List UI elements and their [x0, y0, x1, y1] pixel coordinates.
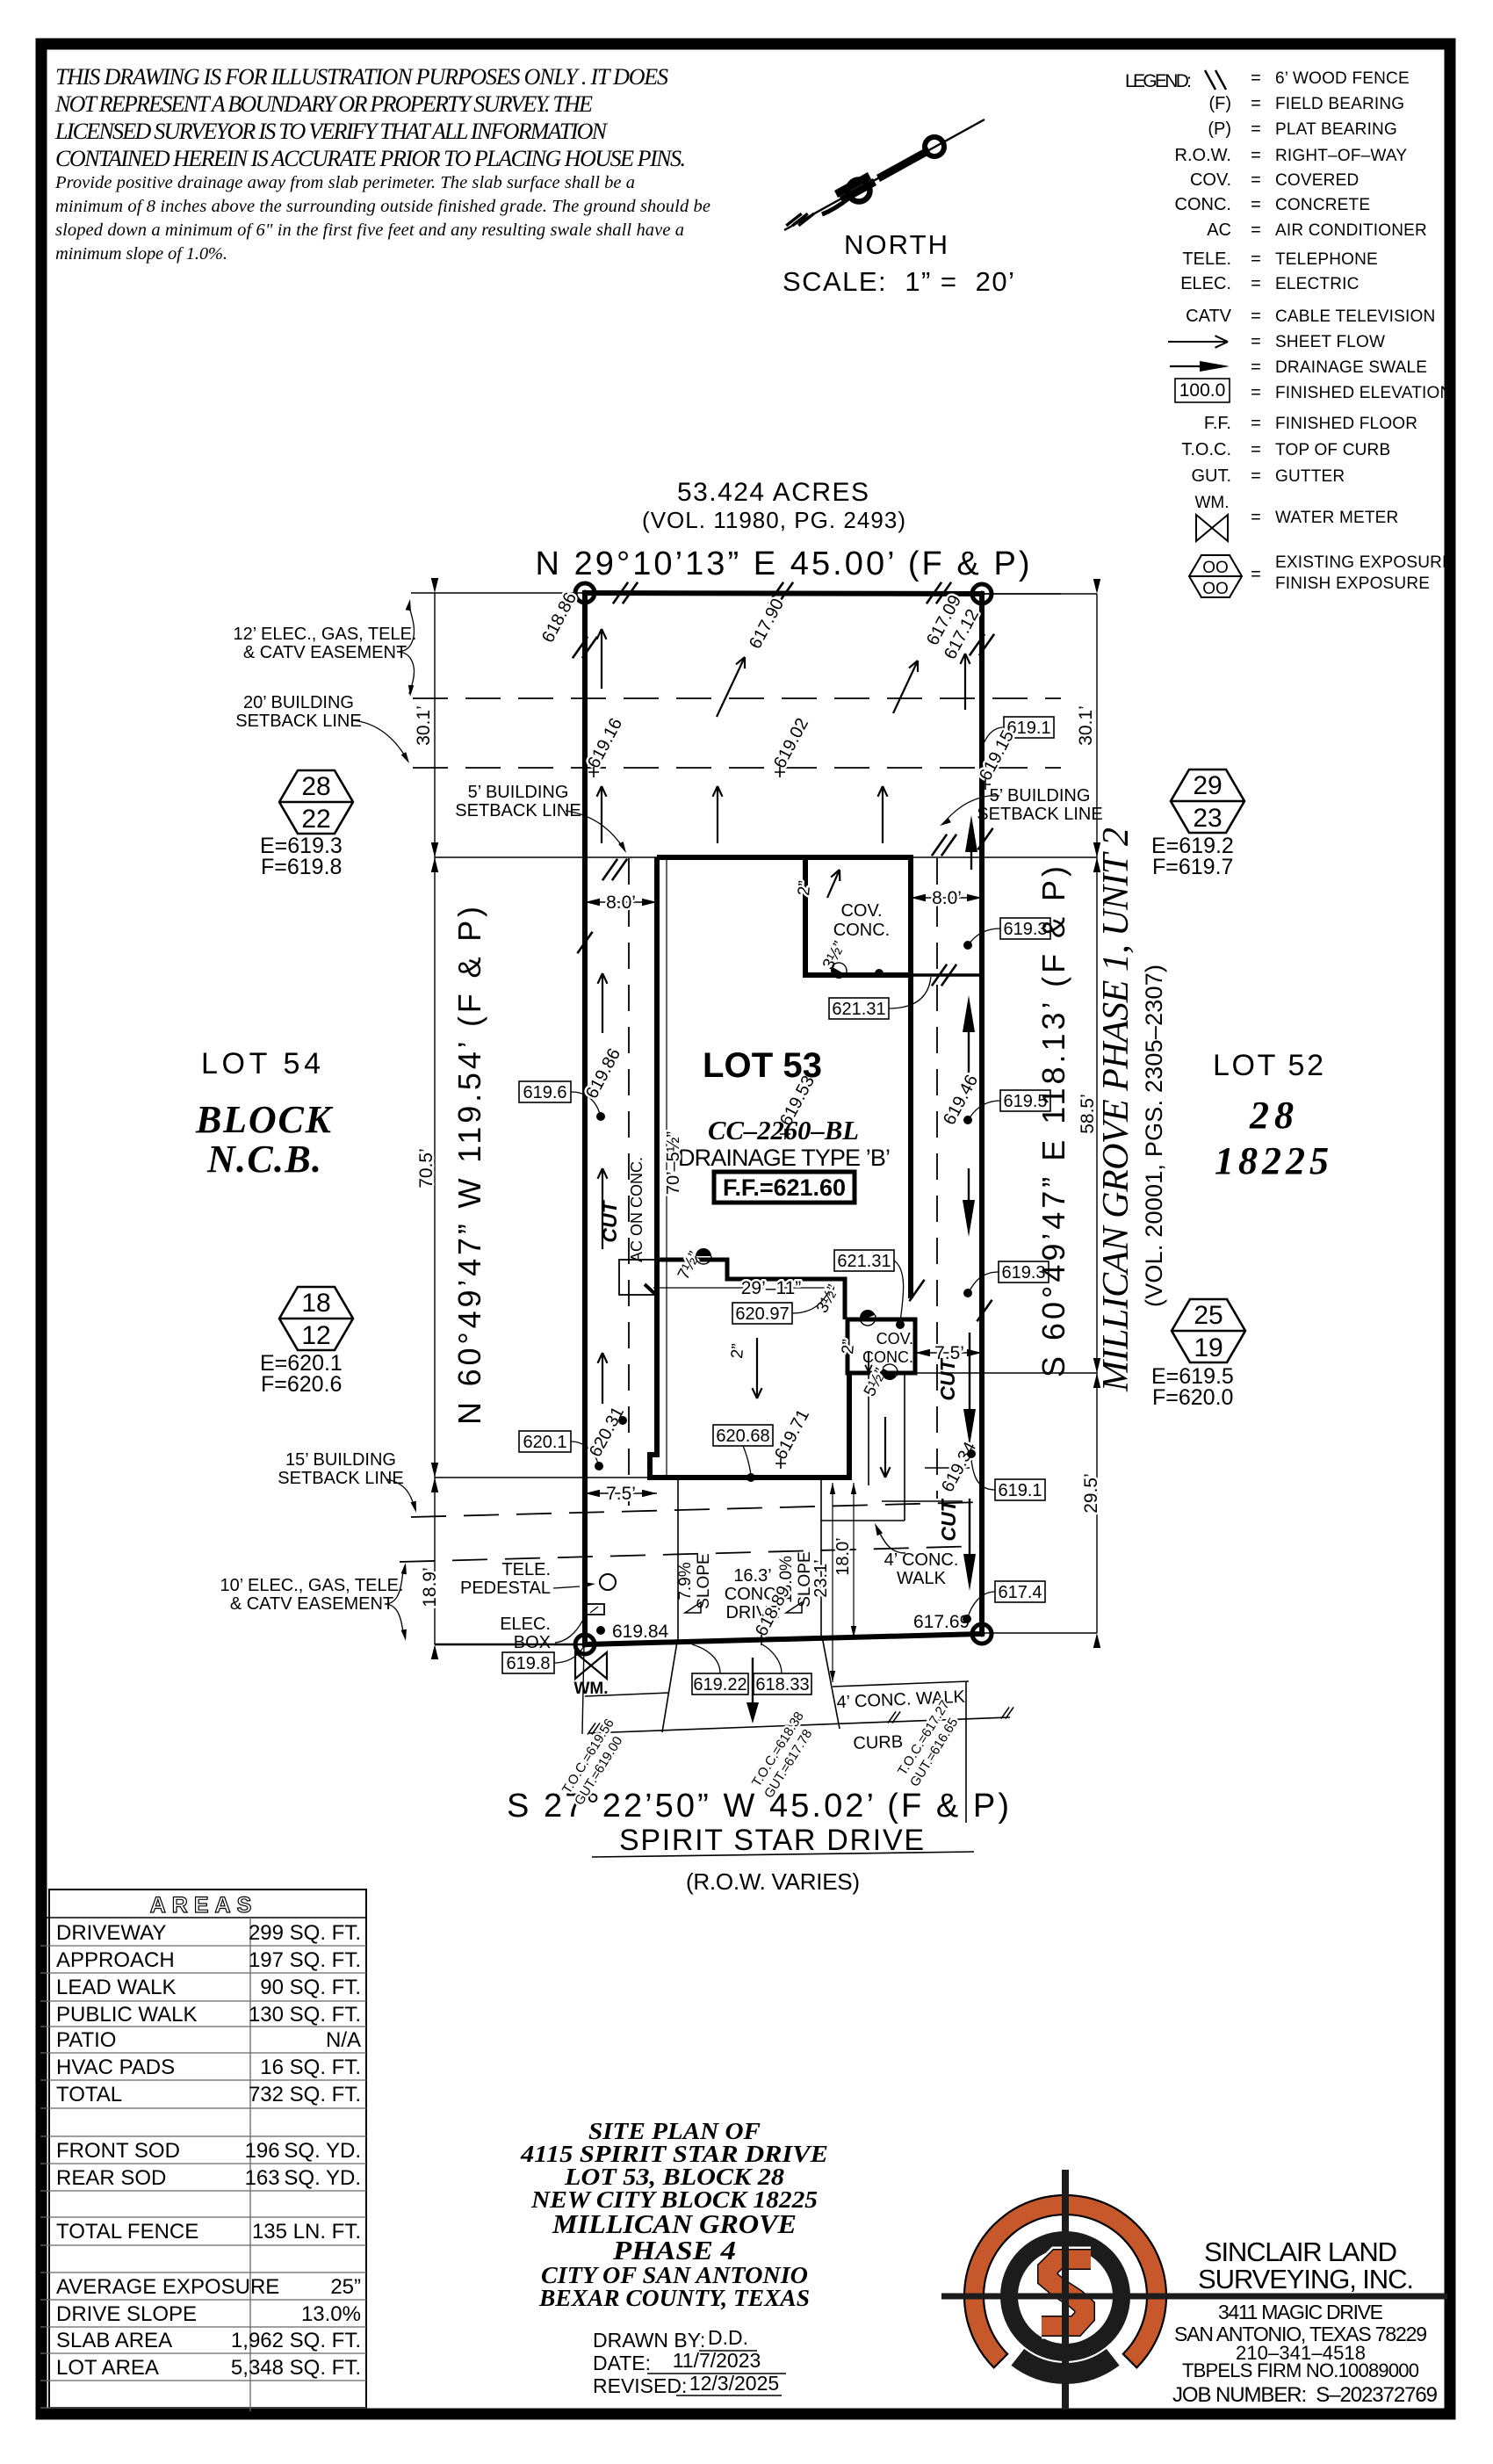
svg-text:617.4: 617.4 — [998, 1583, 1042, 1602]
svg-text:NOT REPRESENT A BOUNDARY OR PR: NOT REPRESENT A BOUNDARY OR PROPERTY SUR… — [54, 91, 593, 117]
svg-text:FINISHED FLOOR: FINISHED FLOOR — [1275, 415, 1417, 433]
svg-text:AC ON CONC.: AC ON CONC. — [628, 1157, 646, 1262]
svg-text:EXISTING EXPOSURE: EXISTING EXPOSURE — [1275, 553, 1453, 572]
svg-text:N/A: N/A — [326, 2028, 361, 2052]
svg-text:FRONT SOD: FRONT SOD — [56, 2139, 180, 2163]
svg-text:12’ ELEC., GAS, TELE.: 12’ ELEC., GAS, TELE. — [234, 625, 417, 644]
svg-text:SETBACK LINE: SETBACK LINE — [235, 712, 361, 731]
svg-text:WM.: WM. — [1194, 494, 1229, 512]
svg-text:197 SQ. FT.: 197 SQ. FT. — [249, 1948, 361, 1972]
svg-text:25”: 25” — [330, 2275, 361, 2299]
svg-text:=: = — [1251, 69, 1261, 88]
svg-text:TBPELS FIRM NO.10089000: TBPELS FIRM NO.10089000 — [1182, 2359, 1419, 2381]
svg-text:SCALE: 1” = 20’: SCALE: 1” = 20’ — [783, 266, 1014, 297]
svg-text:BOX: BOX — [514, 1633, 551, 1652]
svg-text:15’ BUILDING: 15’ BUILDING — [285, 1450, 396, 1470]
svg-text:TOP OF CURB: TOP OF CURB — [1275, 441, 1390, 459]
svg-text:TELE.: TELE. — [1182, 249, 1231, 269]
svg-text:COVERED: COVERED — [1275, 171, 1359, 190]
svg-text:100.0: 100.0 — [1179, 380, 1226, 401]
svg-text:CUT: CUT — [598, 1199, 621, 1242]
svg-text:ELEC.: ELEC. — [500, 1615, 551, 1634]
svg-text:minimum of 8 inches above the: minimum of 8 inches above the surroundin… — [55, 197, 710, 216]
svg-text:732 SQ. FT.: 732 SQ. FT. — [249, 2083, 361, 2106]
svg-text:PLAT BEARING: PLAT BEARING — [1275, 120, 1397, 139]
svg-text:CONC.: CONC. — [1175, 195, 1231, 214]
svg-text:FIELD BEARING: FIELD BEARING — [1275, 95, 1404, 113]
svg-text:CATV: CATV — [1186, 307, 1232, 326]
svg-text:JOB NUMBER: S–202372769: JOB NUMBER: S–202372769 — [1172, 2383, 1438, 2407]
svg-text:6’ WOOD FENCE: 6’ WOOD FENCE — [1275, 69, 1410, 88]
svg-text:53.424 ACRES: 53.424 ACRES — [677, 478, 870, 507]
svg-text:N.C.B.: N.C.B. — [206, 1138, 321, 1181]
svg-text:620.68: 620.68 — [716, 1427, 769, 1446]
svg-text:T.O.C.: T.O.C. — [1181, 440, 1231, 459]
svg-text:=: = — [1251, 119, 1261, 139]
svg-text:620.97: 620.97 — [735, 1304, 789, 1324]
svg-text:29’–11”: 29’–11” — [741, 1278, 802, 1298]
svg-text:minimum slope of 1.0%.: minimum slope of 1.0%. — [55, 244, 227, 264]
svg-text:COV.: COV. — [876, 1330, 913, 1348]
svg-text:=: = — [1251, 414, 1261, 433]
svg-text:SLOPE: SLOPE — [695, 1553, 713, 1608]
svg-text:=: = — [1251, 508, 1261, 527]
svg-text:SETBACK LINE: SETBACK LINE — [455, 801, 581, 820]
svg-text:CUT: CUT — [937, 1498, 960, 1541]
svg-text:617.69: 617.69 — [913, 1612, 970, 1632]
svg-text:F.F.=621.60: F.F.=621.60 — [723, 1174, 846, 1201]
svg-text:5,348 SQ. FT.: 5,348 SQ. FT. — [231, 2356, 361, 2380]
svg-text:PHASE 4: PHASE 4 — [612, 2235, 736, 2265]
svg-text:130 SQ. FT.: 130 SQ. FT. — [249, 2003, 361, 2027]
svg-text:299 SQ. FT.: 299 SQ. FT. — [249, 1921, 361, 1945]
svg-text:20’ BUILDING: 20’ BUILDING — [243, 693, 354, 712]
svg-text:5’ BUILDING: 5’ BUILDING — [468, 783, 569, 802]
svg-text:12: 12 — [301, 1321, 330, 1350]
svg-text:OO: OO — [1202, 559, 1229, 577]
svg-text:APPROACH: APPROACH — [56, 1948, 175, 1972]
svg-text:SHEET FLOW: SHEET FLOW — [1275, 333, 1385, 351]
svg-text:2”: 2” — [795, 880, 814, 897]
svg-text:23.1’: 23.1’ — [811, 1559, 831, 1597]
svg-text:(P): (P) — [1208, 119, 1231, 139]
svg-text:TOTAL: TOTAL — [56, 2083, 122, 2106]
svg-text:(VOL. 20001, PGS. 2305–2307): (VOL. 20001, PGS. 2305–2307) — [1141, 965, 1167, 1307]
svg-text:DRAINAGE TYPE ’B’: DRAINAGE TYPE ’B’ — [678, 1145, 891, 1171]
svg-text:Provide positive drainage away: Provide positive drainage away from slab… — [54, 173, 635, 192]
svg-text:SINCLAIR LAND: SINCLAIR LAND — [1204, 2236, 1399, 2267]
svg-text:618.33: 618.33 — [755, 1675, 809, 1694]
svg-text:F=620.6: F=620.6 — [261, 1372, 342, 1397]
svg-text:=: = — [1251, 383, 1261, 402]
svg-text:10’ ELEC., GAS, TELE.: 10’ ELEC., GAS, TELE. — [220, 1576, 404, 1595]
svg-text:29: 29 — [1193, 771, 1222, 800]
svg-text:30.1’: 30.1’ — [414, 705, 434, 746]
svg-text:18225: 18225 — [1215, 1139, 1329, 1182]
svg-text:16.3’: 16.3’ — [733, 1566, 771, 1586]
svg-text:REAR SOD: REAR SOD — [56, 2166, 166, 2190]
svg-text:=: = — [1251, 220, 1261, 240]
svg-text:HVAC PADS: HVAC PADS — [56, 2056, 175, 2079]
svg-text:MILLICAN GROVE PHASE 1, UNIT 2: MILLICAN GROVE PHASE 1, UNIT 2 — [1096, 827, 1136, 1392]
svg-text:AC: AC — [1207, 220, 1231, 240]
svg-text:=: = — [1251, 358, 1261, 377]
svg-text:30.1’: 30.1’ — [1076, 705, 1096, 746]
svg-text:LOT 54: LOT 54 — [201, 1047, 326, 1080]
svg-text:=: = — [1251, 195, 1261, 214]
svg-text:2”: 2” — [839, 1339, 858, 1355]
svg-text:CONC.: CONC. — [833, 921, 890, 940]
svg-text:22: 22 — [301, 805, 330, 834]
svg-text:7.5’: 7.5’ — [606, 1484, 636, 1504]
svg-text:F=619.8: F=619.8 — [261, 855, 342, 879]
svg-text:sloped down a minimum of 6" in: sloped down a minimum of 6" in the first… — [55, 220, 684, 240]
svg-text:PEDESTAL: PEDESTAL — [460, 1579, 551, 1598]
svg-text:CUT: CUT — [936, 1357, 959, 1400]
svg-text:LOT AREA: LOT AREA — [56, 2356, 159, 2380]
svg-text:PATIO: PATIO — [56, 2028, 116, 2052]
svg-text:CONTAINED HEREIN IS ACCURATE P: CONTAINED HEREIN IS ACCURATE PRIOR TO PL… — [55, 146, 686, 171]
svg-text:BEXAR COUNTY, TEXAS: BEXAR COUNTY, TEXAS — [538, 2285, 810, 2311]
svg-text:619.22: 619.22 — [693, 1675, 746, 1694]
svg-text:8.0’: 8.0’ — [606, 892, 636, 913]
svg-text:F=619.7: F=619.7 — [1152, 855, 1233, 879]
svg-text:SPIRIT STAR DRIVE: SPIRIT STAR DRIVE — [619, 1824, 927, 1857]
svg-text:LICENSED SURVEYOR IS TO VERIFY: LICENSED SURVEYOR IS TO VERIFY THAT ALL … — [54, 119, 609, 144]
svg-text:SLOPE: SLOPE — [796, 1551, 814, 1607]
svg-text:58.5’: 58.5’ — [1078, 1094, 1098, 1134]
svg-text:4’ CONC.: 4’ CONC. — [884, 1550, 959, 1570]
svg-text:AIR CONDITIONER: AIR CONDITIONER — [1275, 221, 1427, 240]
svg-text:TOTAL FENCE: TOTAL FENCE — [56, 2220, 198, 2244]
svg-text:=: = — [1251, 274, 1261, 293]
svg-text:SLAB AREA: SLAB AREA — [56, 2329, 172, 2352]
svg-text:7.9%: 7.9% — [676, 1562, 695, 1600]
svg-text:DRIVE SLOPE: DRIVE SLOPE — [56, 2302, 197, 2326]
svg-text:70.5’: 70.5’ — [416, 1148, 436, 1189]
svg-text:=: = — [1251, 146, 1261, 165]
svg-text:D.D.: D.D. — [708, 2326, 748, 2349]
svg-text:OO: OO — [1202, 580, 1229, 598]
svg-text:8.0’: 8.0’ — [932, 888, 962, 908]
svg-text:DRAINAGE SWALE: DRAINAGE SWALE — [1275, 358, 1427, 377]
svg-text:ELEC.: ELEC. — [1180, 274, 1231, 293]
svg-text:(VOL. 11980, PG. 2493): (VOL. 11980, PG. 2493) — [642, 507, 905, 533]
svg-text:621.31: 621.31 — [837, 1252, 891, 1271]
svg-text:621.31: 621.31 — [832, 1000, 885, 1019]
svg-text:F.F.: F.F. — [1204, 414, 1231, 433]
svg-text:NORTH: NORTH — [844, 229, 949, 260]
svg-text:=: = — [1251, 565, 1261, 584]
svg-text:CONCRETE: CONCRETE — [1275, 196, 1370, 214]
svg-text:620.1: 620.1 — [523, 1433, 566, 1452]
svg-text:WATER METER: WATER METER — [1275, 509, 1398, 527]
svg-text:70’–5½”: 70’–5½” — [664, 1131, 683, 1195]
svg-text:AVERAGE EXPOSURE: AVERAGE EXPOSURE — [56, 2275, 279, 2299]
svg-text:196 SQ. YD.: 196 SQ. YD. — [245, 2139, 361, 2163]
svg-text:619.1: 619.1 — [998, 1481, 1042, 1500]
svg-text:COV.: COV. — [840, 901, 882, 921]
svg-text:29.5’: 29.5’ — [1081, 1473, 1101, 1514]
svg-text:16 SQ. FT.: 16 SQ. FT. — [260, 2056, 361, 2079]
svg-text:=: = — [1251, 307, 1261, 326]
svg-text:18: 18 — [301, 1289, 330, 1318]
svg-text:THIS DRAWING IS FOR ILLUSTRATI: THIS DRAWING IS FOR ILLUSTRATION PURPOSE… — [55, 64, 668, 90]
svg-text:SETBACK LINE: SETBACK LINE — [278, 1469, 403, 1488]
svg-text:TELE.: TELE. — [501, 1560, 551, 1579]
svg-text:1,962 SQ. FT.: 1,962 SQ. FT. — [231, 2329, 361, 2352]
svg-text:WM.: WM. — [573, 1680, 608, 1698]
svg-text:23: 23 — [1193, 804, 1222, 833]
svg-text:25: 25 — [1194, 1301, 1223, 1330]
svg-text:& CATV EASEMENT: & CATV EASEMENT — [243, 643, 407, 662]
svg-text:=: = — [1251, 94, 1261, 113]
svg-text:3411 MAGIC DRIVE: 3411 MAGIC DRIVE — [1218, 2301, 1383, 2323]
svg-text:=: = — [1251, 440, 1261, 459]
svg-text:COV.: COV. — [1190, 170, 1231, 190]
svg-text:RIGHT–OF–WAY: RIGHT–OF–WAY — [1275, 147, 1407, 165]
svg-text:90 SQ. FT.: 90 SQ. FT. — [260, 1976, 361, 1999]
svg-text:LEGEND:: LEGEND: — [1125, 71, 1192, 91]
svg-text:619.6: 619.6 — [523, 1083, 566, 1102]
svg-text:11/7/2023: 11/7/2023 — [673, 2349, 761, 2372]
svg-text:TELEPHONE: TELEPHONE — [1275, 250, 1378, 269]
svg-text:=: = — [1251, 332, 1261, 351]
svg-text:AREAS: AREAS — [150, 1893, 258, 1918]
svg-text:GUTTER: GUTTER — [1275, 467, 1345, 486]
svg-text:19: 19 — [1194, 1333, 1223, 1362]
svg-text:28: 28 — [301, 772, 330, 801]
svg-text:=: = — [1251, 170, 1261, 190]
svg-text:13.0%: 13.0% — [301, 2302, 361, 2326]
svg-text:=: = — [1251, 466, 1261, 486]
svg-text:FINISH EXPOSURE: FINISH EXPOSURE — [1275, 574, 1430, 593]
svg-text:SURVEYING, INC.: SURVEYING, INC. — [1198, 2264, 1416, 2294]
svg-text:2”: 2” — [728, 1343, 747, 1360]
svg-text:CABLE TELEVISION: CABLE TELEVISION — [1275, 307, 1435, 326]
svg-text:ELECTRIC: ELECTRIC — [1275, 275, 1360, 293]
svg-text:& CATV EASEMENT: & CATV EASEMENT — [230, 1594, 393, 1614]
svg-text:F=620.0: F=620.0 — [1152, 1385, 1233, 1410]
svg-text:LEAD WALK: LEAD WALK — [56, 1976, 177, 1999]
svg-text:LOT 52: LOT 52 — [1213, 1049, 1329, 1082]
svg-text:18.0’: 18.0’ — [833, 1537, 853, 1575]
svg-text:CURB: CURB — [853, 1732, 903, 1753]
svg-text:(R.O.W. VARIES): (R.O.W. VARIES) — [686, 1868, 860, 1895]
svg-text:DATE:: DATE: — [593, 2352, 651, 2374]
svg-text:=: = — [1251, 249, 1261, 269]
svg-text:BLOCK: BLOCK — [195, 1098, 334, 1141]
svg-text:GUT.: GUT. — [1191, 466, 1231, 486]
svg-text:619.8: 619.8 — [506, 1654, 550, 1673]
svg-text:(F): (F) — [1208, 94, 1231, 113]
svg-text:18.9’: 18.9’ — [420, 1567, 440, 1608]
svg-text:163 SQ. YD.: 163 SQ. YD. — [245, 2166, 361, 2190]
svg-text:5’ BUILDING: 5’ BUILDING — [990, 786, 1091, 806]
svg-text:REVISED:: REVISED: — [593, 2374, 687, 2397]
svg-text:PUBLIC WALK: PUBLIC WALK — [56, 2003, 198, 2027]
svg-text:12/3/2025: 12/3/2025 — [689, 2372, 779, 2395]
svg-text:CONC.: CONC. — [862, 1348, 913, 1366]
svg-text:135 LN. FT.: 135 LN. FT. — [252, 2220, 361, 2244]
svg-text:SETBACK LINE: SETBACK LINE — [977, 805, 1102, 824]
svg-text:DRIVEWAY: DRIVEWAY — [56, 1921, 166, 1945]
svg-text:R.O.W.: R.O.W. — [1175, 146, 1231, 165]
svg-text:WALK: WALK — [897, 1569, 947, 1588]
svg-text:619.84: 619.84 — [612, 1622, 669, 1642]
svg-text:FINISHED ELEVATION: FINISHED ELEVATION — [1275, 384, 1452, 402]
